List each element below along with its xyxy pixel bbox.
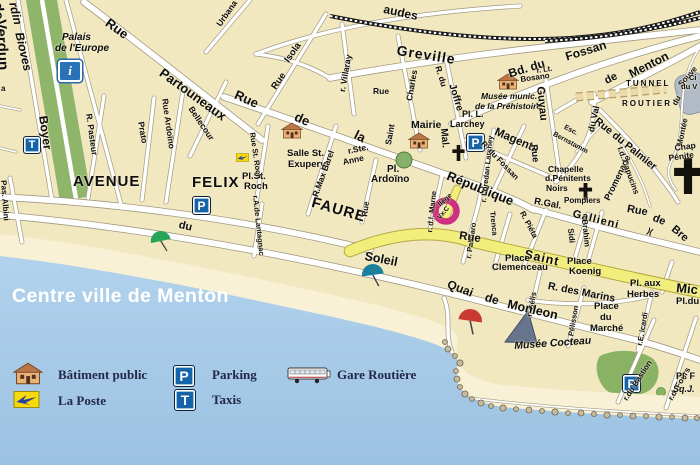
street-label-sidi: Sidi [566,228,575,243]
place-label-st-roch-2: Roch [244,182,268,192]
parking-legend-icon: P [173,365,195,387]
place-label-larchey-2: Larchey [450,120,485,129]
street-label-brahim: Brahim [580,219,591,247]
place-label-herbes-1: Pl. aux [630,279,661,289]
taxi-legend-icon: T [174,389,196,411]
place-label-sq-j: Sq.J. [673,385,695,394]
poi-label-tunnel-2: ROUTIER [622,100,672,108]
place-label-pl-du: Pl.du [676,297,699,307]
legend-label-parking: Parking [212,367,257,383]
street-label-st-charles-rue: Rue [373,87,389,96]
street-label-guyau-rue: Rue [529,144,540,163]
poi-label-prehistoire-1: Musée munic. [481,92,537,101]
poi-label-pompiers: Pompiers [564,197,600,205]
poi-label-chapelle-2: d.Pénitents [545,174,591,183]
place-label-ardoino-2: Ardoïno [371,175,409,185]
city-map-menton: P P P P T T i rdin Bioves de Verdun Pala… [0,0,700,465]
poi-label-cim-1: Ci [689,74,697,82]
street-label-verdun-de: de [0,2,6,20]
street-label-guyau: Guyau [534,86,549,121]
place-label-marche-2: du [600,313,612,323]
la-poste-icon [236,154,249,162]
info-icon: i [58,60,82,82]
place-label-marche-1: Place [594,302,619,312]
poi-label-prehistoire-2: de la Préhistoire [475,102,541,111]
street-label-verdun: Verdun [0,19,11,71]
legend-label-gare: Gare Routière [337,367,416,383]
la-poste-legend-icon [14,392,39,408]
place-label-pl-f: Pl. F [676,372,695,381]
place-label-marche-3: Marché [590,324,623,334]
street-label-mal: Mal. [438,128,450,148]
place-label-koenig-2: Koenig [569,267,601,277]
poi-label-chapelle-3: Noirs [546,184,568,193]
legend-label-taxis: Taxis [212,392,241,408]
street-label-albini: Pas. Albini [0,180,10,221]
map-title: Centre ville de Menton [12,285,229,308]
street-label-fragment: a [1,85,5,93]
place-label-clemenceau-2: Clemenceau [492,263,548,273]
place-label-larchey-1: Pl. L. [462,110,484,119]
poi-label-tunnel-1: TUNNEL [626,80,670,88]
street-label-avenue: AVENUE [73,174,140,189]
street-label-felix: FELIX [192,175,240,190]
poi-label-palais-2: de l'Europe [55,44,109,54]
legend-label-batiment: Bâtiment public [58,367,147,383]
street-label-michel: Mic [676,281,699,296]
poi-label-palais-1: Palais [62,33,91,43]
place-label-herbes-2: Herbes [627,290,659,300]
poi-label-salle-1: Salle St. [287,149,324,159]
poi-label-cim-2: du V [681,83,697,91]
poi-label-mairie: Mairie [411,120,441,131]
legend-label-poste: La Poste [58,393,106,409]
parking-icon: P [192,196,211,215]
street-label-trenca: Trenca [489,211,499,236]
